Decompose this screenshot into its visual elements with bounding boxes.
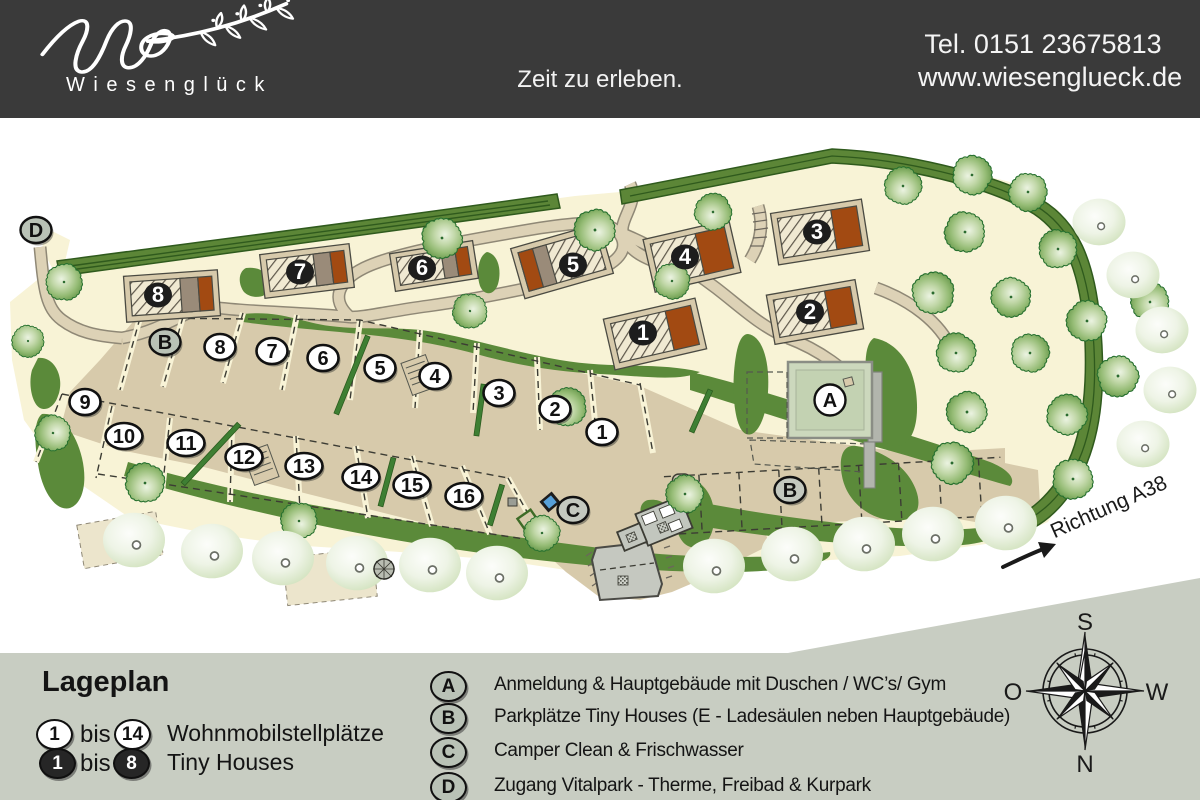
svg-text:13: 13 xyxy=(293,456,315,478)
svg-text:B: B xyxy=(158,332,172,354)
svg-text:3: 3 xyxy=(493,383,504,405)
svg-text:12: 12 xyxy=(233,447,255,469)
svg-text:O: O xyxy=(1004,679,1023,706)
svg-text:2: 2 xyxy=(804,299,816,324)
svg-text:4: 4 xyxy=(429,366,441,388)
svg-text:5: 5 xyxy=(567,252,579,277)
svg-text:7: 7 xyxy=(294,259,306,284)
svg-text:1: 1 xyxy=(637,320,649,345)
svg-text:8: 8 xyxy=(214,337,225,359)
svg-text:N: N xyxy=(1076,751,1093,778)
svg-text:S: S xyxy=(1077,609,1093,636)
svg-text:W: W xyxy=(1146,679,1169,706)
svg-text:10: 10 xyxy=(113,426,135,448)
svg-text:14: 14 xyxy=(350,467,373,489)
svg-text:6: 6 xyxy=(416,255,428,280)
svg-text:5: 5 xyxy=(374,358,385,380)
svg-text:16: 16 xyxy=(453,486,475,508)
svg-text:C: C xyxy=(566,500,580,522)
svg-text:3: 3 xyxy=(811,219,823,244)
svg-text:B: B xyxy=(783,480,797,502)
svg-text:8: 8 xyxy=(152,282,164,307)
svg-text:A: A xyxy=(823,390,837,412)
svg-text:11: 11 xyxy=(175,433,196,455)
svg-text:15: 15 xyxy=(401,475,423,497)
svg-text:2: 2 xyxy=(549,399,560,421)
svg-text:1: 1 xyxy=(596,422,607,444)
svg-text:7: 7 xyxy=(266,341,277,363)
svg-text:D: D xyxy=(29,220,43,242)
svg-text:6: 6 xyxy=(317,348,328,370)
svg-text:4: 4 xyxy=(679,244,692,269)
svg-text:9: 9 xyxy=(79,392,90,414)
